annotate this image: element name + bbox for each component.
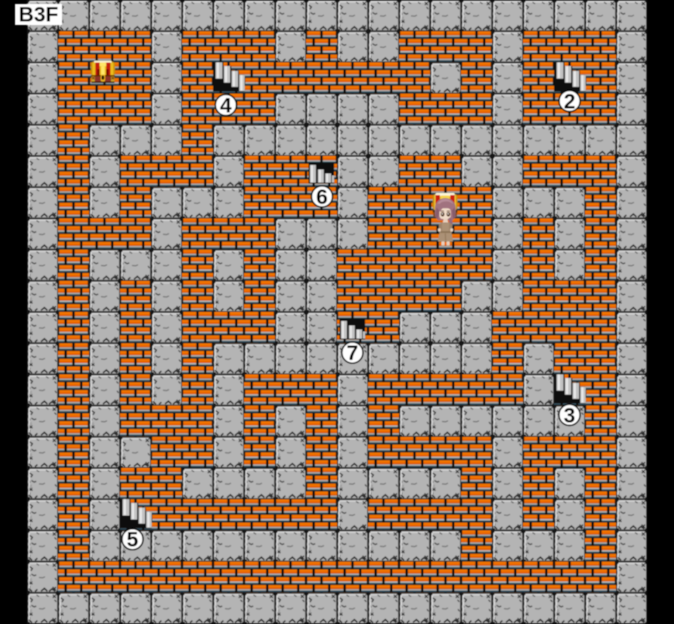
svg-text:6: 6 — [316, 186, 328, 209]
svg-text:7: 7 — [347, 342, 359, 365]
svg-text:2: 2 — [564, 91, 576, 114]
svg-text:B3F: B3F — [19, 4, 59, 27]
svg-text:5: 5 — [127, 529, 139, 552]
svg-text:3: 3 — [564, 404, 576, 427]
svg-text:4: 4 — [220, 95, 232, 118]
